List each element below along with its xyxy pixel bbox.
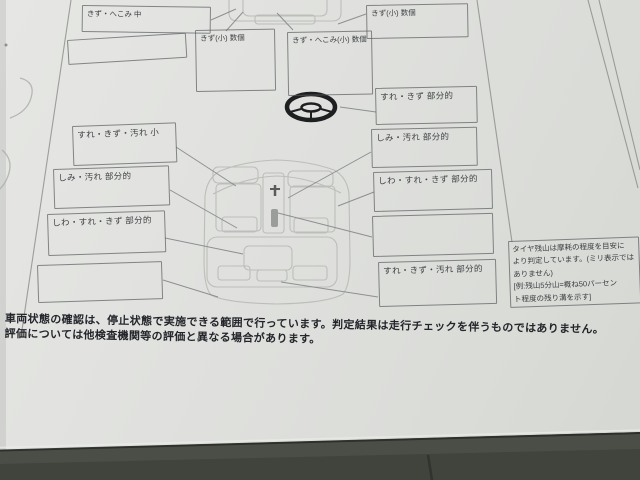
tire-tread-note: タイヤ残山は摩耗の程度を目安に より判定しています。(ミリ表示では ありません)… (508, 236, 640, 308)
steering-wheel-icon (287, 94, 335, 120)
annotation-label: すれ・きず・汚れ 部分的 (379, 260, 495, 276)
annotation-label: きず・へこみ(小) 数個 (288, 32, 371, 46)
annotation-box-scratch-small-several: きず(小) 数個 (195, 29, 276, 92)
annotation-label (373, 214, 492, 220)
gear-shifter-icon (270, 185, 280, 227)
annotation-box-stain-dirt-partial-right: しみ・汚れ 部分的 (371, 127, 478, 168)
annotation-label: きず(小) 数個 (196, 30, 274, 44)
annotation-box-empty-left (37, 261, 163, 303)
annotation-box-scratch-dent-small-several: きず・へこみ(小) 数個 (287, 31, 373, 96)
annotation-box-wear-scratch-dirt-partial: すれ・きず・汚れ 部分的 (378, 259, 497, 307)
annotation-label: すれ・きず・汚れ 小 (73, 123, 175, 140)
annotation-box-wrinkle-wear-scratch-partial-left: しわ・すれ・きず 部分的 (47, 210, 166, 256)
annotation-box-empty-right (372, 213, 494, 257)
annotation-label: すれ・きず 部分的 (376, 87, 476, 102)
photo-of-vehicle-inspection-sheet: きず・へこみ 中 きず(小) 数個 きず・へこみ(小) 数個 きず(小) 数個 … (0, 0, 640, 480)
annotation-label: しわ・すれ・きず 部分的 (48, 211, 164, 228)
annotation-box-scratch-small-several-right: きず(小) 数個 (366, 3, 469, 39)
annotation-label: しわ・すれ・きず 部分的 (374, 170, 491, 186)
annotation-box-scratch-dent-medium: きず・へこみ 中 (82, 5, 211, 34)
paper-edge-shadow (0, 0, 6, 452)
annotation-label: きず・へこみ 中 (83, 6, 210, 21)
annotation-label: しみ・汚れ 部分的 (372, 128, 476, 143)
annotation-box-stain-dirt-partial-left: しみ・汚れ 部分的 (53, 165, 170, 209)
desk-surface (0, 430, 640, 480)
annotation-box-wear-scratch-partial: すれ・きず 部分的 (375, 86, 478, 125)
annotation-label: しみ・汚れ 部分的 (54, 166, 168, 183)
annotation-box-wrinkle-wear-scratch-partial-right: しわ・すれ・きず 部分的 (373, 169, 493, 212)
annotation-box-wear-scratch-dirt-small: すれ・きず・汚れ 小 (72, 122, 177, 166)
annotation-label: きず(小) 数個 (367, 4, 467, 19)
